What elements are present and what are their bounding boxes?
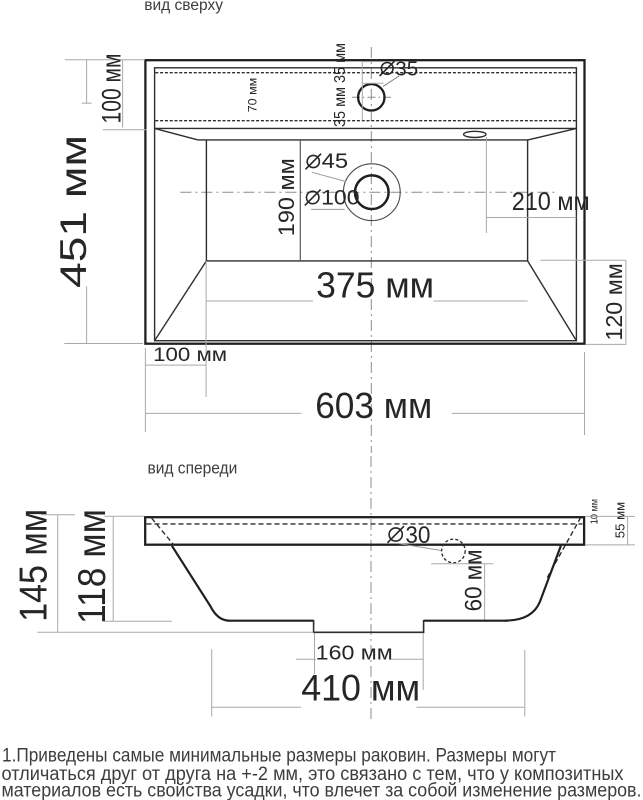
svg-text:вид сверху: вид сверху (144, 0, 223, 14)
svg-text:10 мм: 10 мм (589, 499, 601, 524)
svg-text:70 мм: 70 мм (248, 78, 260, 113)
svg-text:410 мм: 410 мм (301, 668, 420, 709)
svg-text:55 мм: 55 мм (614, 502, 628, 539)
svg-text:вид спереди: вид спереди (148, 459, 238, 478)
svg-text:100 мм: 100 мм (97, 54, 127, 124)
svg-text:210 мм: 210 мм (512, 188, 590, 216)
svg-text:190 мм: 190 мм (274, 158, 299, 236)
svg-text:35: 35 (395, 59, 418, 81)
svg-text:603 мм: 603 мм (315, 385, 432, 426)
svg-text:45: 45 (322, 150, 349, 173)
svg-text:118 мм: 118 мм (71, 509, 114, 624)
svg-text:100 мм: 100 мм (153, 345, 227, 366)
svg-text:451 мм: 451 мм (53, 135, 94, 288)
svg-text:60 мм: 60 мм (460, 549, 487, 611)
svg-text:35 мм: 35 мм (332, 87, 349, 127)
svg-text:145 мм: 145 мм (13, 509, 56, 622)
svg-text:375 мм: 375 мм (316, 264, 434, 305)
svg-text:120 мм: 120 мм (601, 263, 627, 341)
svg-text:материалов есть свойства усадк: материалов есть свойства усадки, что вле… (2, 781, 642, 800)
svg-text:160 мм: 160 мм (316, 642, 393, 664)
svg-text:100: 100 (321, 186, 360, 210)
svg-text:35 мм: 35 мм (332, 43, 349, 83)
